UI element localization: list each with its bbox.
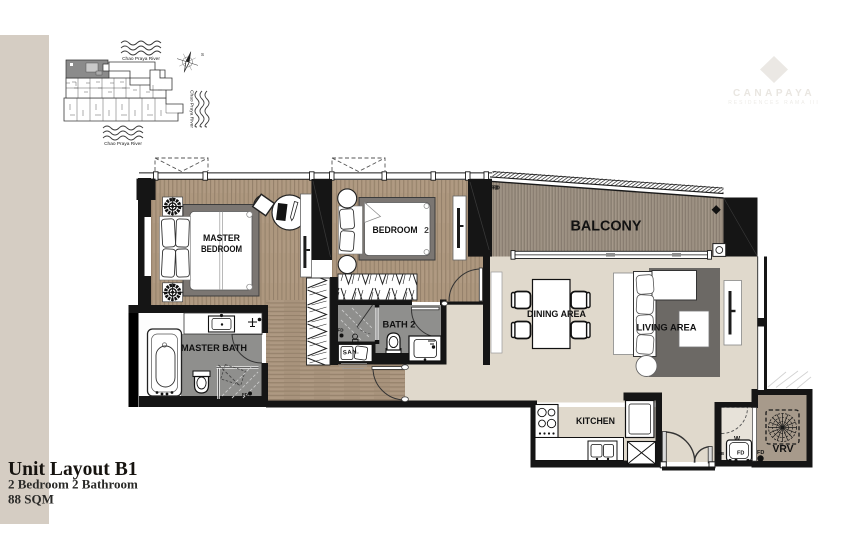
svg-text:2: 2 [424,225,429,235]
svg-text:BALCONY: BALCONY [571,219,642,235]
svg-text:FD: FD [737,451,744,457]
svg-text:88 SQM: 88 SQM [8,492,54,507]
svg-text:CANAPAYA: CANAPAYA [733,88,815,99]
svg-text:2 Bedroom 2 Bathroom: 2 Bedroom 2 Bathroom [8,477,138,492]
svg-text:KITCHEN: KITCHEN [576,416,615,426]
svg-text:MASTER: MASTER [203,232,240,243]
svg-text:S: S [201,52,204,57]
svg-text:VRV: VRV [773,444,794,455]
svg-text:DINING AREA: DINING AREA [527,309,587,319]
svg-text:Chao Praya River: Chao Praya River [122,56,160,62]
svg-text:W.: W. [734,436,742,443]
svg-text:HB: HB [718,451,725,456]
svg-text:RESIDENCES RAMA III: RESIDENCES RAMA III [728,100,820,106]
svg-text:FD: FD [242,392,249,397]
svg-text:FD: FD [493,186,500,192]
svg-text:BATH 2: BATH 2 [383,319,416,329]
svg-text:MASTER BATH: MASTER BATH [181,343,247,353]
svg-text:BEDROOM: BEDROOM [373,224,418,235]
svg-text:Chao Praya River: Chao Praya River [189,90,195,128]
svg-text:SAN.: SAN. [343,349,360,356]
svg-text:FD: FD [757,450,764,456]
svg-text:FD: FD [338,328,345,333]
svg-text:BEDROOM: BEDROOM [201,243,242,254]
svg-text:Chao Praya River: Chao Praya River [104,141,142,147]
svg-text:LIVING AREA: LIVING AREA [637,323,698,333]
